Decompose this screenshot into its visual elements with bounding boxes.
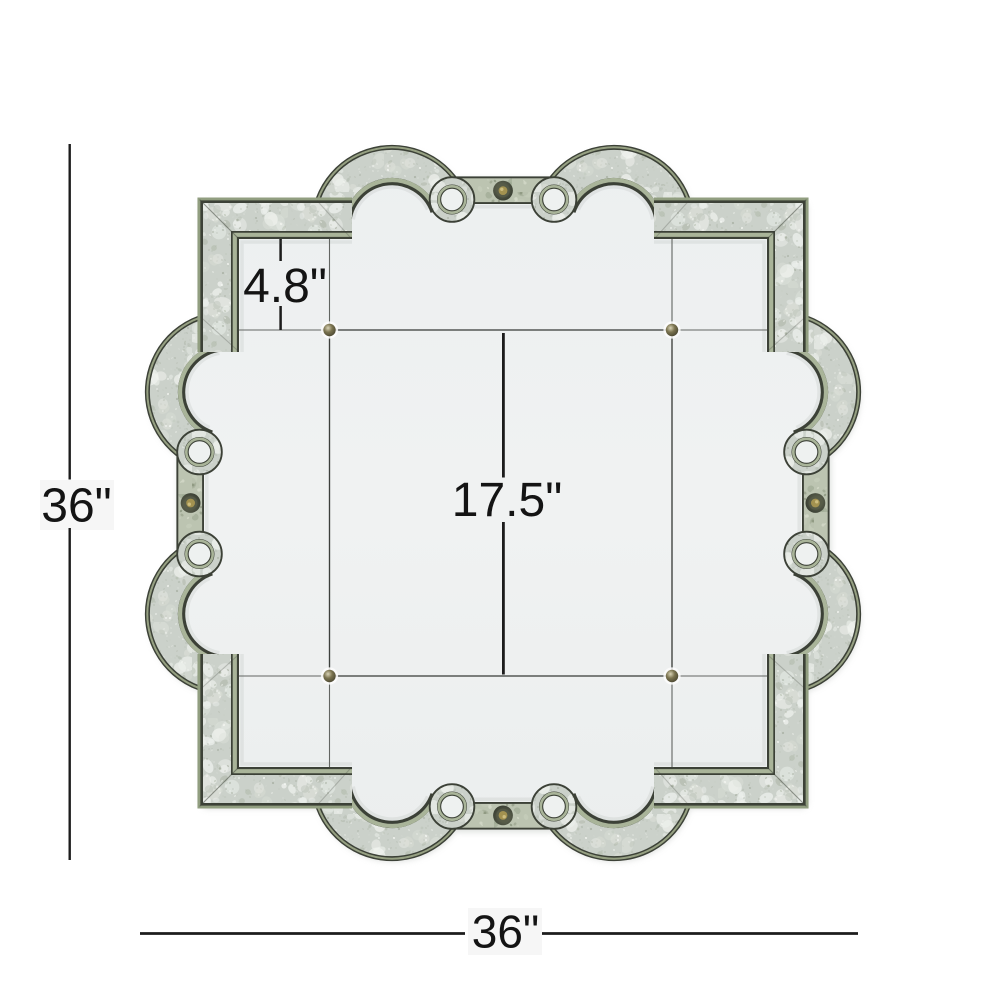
svg-text:36": 36" <box>41 480 111 533</box>
svg-text:36": 36" <box>472 906 540 958</box>
svg-text:17.5": 17.5" <box>452 474 562 527</box>
svg-text:4.8": 4.8" <box>243 260 327 313</box>
